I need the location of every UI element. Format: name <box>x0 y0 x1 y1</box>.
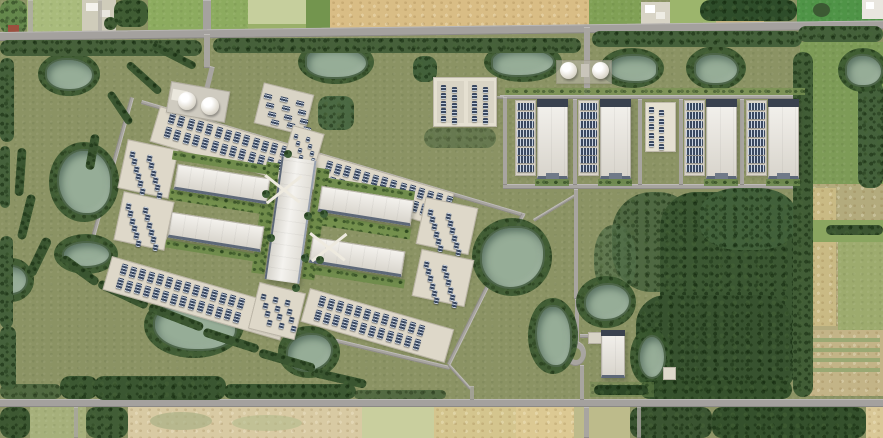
cooling-unit <box>517 130 534 137</box>
lawn-strip <box>598 179 632 186</box>
tree <box>316 256 324 264</box>
crop-row <box>812 358 880 362</box>
tree-clump <box>318 96 354 130</box>
farm-field <box>866 407 883 438</box>
tree <box>292 284 300 292</box>
equipment-unit <box>433 297 439 305</box>
tree-clump <box>114 0 148 27</box>
farm-road <box>28 0 33 34</box>
lawn-strip <box>505 88 805 95</box>
equipment-unit <box>135 239 141 247</box>
cooling-unit <box>748 130 765 137</box>
transformer-unit <box>649 141 654 147</box>
cooling-unit <box>517 165 534 172</box>
cooling-unit <box>517 121 534 128</box>
campus-road <box>503 97 507 185</box>
utility-unit <box>309 151 314 157</box>
forest <box>700 188 796 250</box>
cooling-unit <box>580 148 597 155</box>
tree <box>262 190 270 198</box>
cooling-unit <box>686 139 703 146</box>
crop-row <box>812 368 880 372</box>
transformer-unit <box>649 124 654 130</box>
transformer-unit <box>659 136 664 142</box>
transformer-unit <box>649 107 654 113</box>
tree-band-west <box>0 236 13 328</box>
tree-clump <box>424 128 496 148</box>
cooling-unit <box>517 156 534 163</box>
farm-building <box>656 12 665 19</box>
cooling-unit <box>517 139 534 146</box>
transformer-unit <box>659 110 664 116</box>
transformer-unit <box>649 133 654 139</box>
cooling-unit <box>686 121 703 128</box>
equipment-unit <box>152 243 158 251</box>
hedgerow <box>594 385 648 395</box>
data-hall <box>768 99 799 179</box>
utility-unit <box>297 148 302 154</box>
cooling-unit <box>748 103 765 110</box>
farm-building <box>86 3 98 11</box>
transformer-unit <box>472 101 477 107</box>
roof-section <box>706 99 737 107</box>
crop-row <box>812 338 880 342</box>
tree-band-west <box>0 326 16 390</box>
tree <box>304 212 312 220</box>
cooling-unit <box>748 156 765 163</box>
transformer-unit <box>452 95 457 101</box>
cooling-unit <box>686 165 703 172</box>
transformer-unit <box>452 118 457 124</box>
field-blotch <box>150 412 212 430</box>
transformer-unit <box>483 95 488 101</box>
field-blotch <box>232 415 302 431</box>
transformer-unit <box>659 119 664 125</box>
equipment-unit <box>137 180 143 188</box>
cooling-unit <box>748 165 765 172</box>
transformer-unit <box>472 93 477 99</box>
pond <box>638 335 666 379</box>
hedgerow <box>826 225 883 235</box>
transformer-unit <box>452 110 457 116</box>
pond <box>694 53 739 85</box>
crop-row <box>812 348 880 352</box>
cooling-unit <box>517 103 534 110</box>
campus-road <box>574 189 578 299</box>
tree-clump <box>86 407 128 438</box>
pond <box>45 58 94 91</box>
transformer-unit <box>472 85 477 91</box>
tree-band-south <box>224 384 356 399</box>
cooling-unit <box>748 121 765 128</box>
tree-band-south <box>354 390 446 399</box>
pond <box>845 54 883 87</box>
cooling-unit <box>748 112 765 119</box>
farm-field <box>810 188 836 326</box>
equipment-unit <box>437 245 443 253</box>
lawn-strip <box>704 179 738 186</box>
transformer-unit <box>649 116 654 122</box>
pond <box>57 149 112 215</box>
transformer-unit <box>441 85 446 91</box>
cooling-unit <box>580 165 597 172</box>
aerial-site-plan <box>0 0 883 438</box>
transformer-unit <box>472 116 477 122</box>
tree-band-south <box>94 376 226 400</box>
equipment-unit <box>154 184 160 192</box>
tree-clump <box>0 407 30 438</box>
farm-field <box>574 407 630 438</box>
farm-building <box>866 2 874 9</box>
cooling-unit <box>686 156 703 163</box>
utility-building <box>601 330 625 378</box>
pond <box>535 305 572 367</box>
farm-road <box>584 407 589 438</box>
tree-band-south <box>60 376 98 399</box>
tree <box>284 150 292 158</box>
farm-field <box>362 407 434 438</box>
tree <box>301 254 309 262</box>
tree-band-north <box>213 38 581 53</box>
cooling-unit <box>580 112 597 119</box>
tree <box>267 234 275 242</box>
cooling-unit <box>580 130 597 137</box>
pump-building <box>581 64 589 77</box>
roof-section <box>768 99 799 107</box>
farm-field <box>838 242 883 330</box>
farm-road <box>98 0 102 34</box>
highway-south <box>0 399 883 407</box>
campus-road <box>470 386 474 400</box>
cooling-unit <box>580 156 597 163</box>
roof-section <box>601 330 625 336</box>
tree-clump <box>630 407 712 438</box>
farm-field <box>248 0 306 24</box>
equipment-unit <box>133 232 139 240</box>
farm-field <box>516 407 574 438</box>
tree-band-south <box>640 380 792 399</box>
equipment-unit <box>451 301 457 309</box>
lawn-strip <box>766 179 800 186</box>
pond <box>607 54 658 83</box>
transformer-unit <box>483 87 488 93</box>
cooling-unit <box>580 121 597 128</box>
tree-clump <box>858 80 883 188</box>
tree-band-west <box>0 146 10 208</box>
campus-road <box>573 99 577 185</box>
cooling-unit <box>686 130 703 137</box>
water-tank <box>592 62 609 79</box>
transformer-unit <box>659 144 664 150</box>
water-tank <box>201 97 219 115</box>
data-hall <box>537 99 568 179</box>
transformer-unit <box>452 87 457 93</box>
equipment-unit <box>150 236 156 244</box>
tree <box>320 210 328 218</box>
transformer-unit <box>441 93 446 99</box>
roof-section <box>537 99 568 107</box>
transformer-unit <box>472 108 477 114</box>
transformer-unit <box>441 116 446 122</box>
cooling-unit <box>580 103 597 110</box>
transformer-unit <box>441 108 446 114</box>
lawn-strip <box>535 179 569 186</box>
campus-road <box>740 99 744 185</box>
cooling-unit <box>580 139 597 146</box>
farm-pond <box>813 3 830 17</box>
data-hall <box>706 99 737 179</box>
tree-row <box>700 0 797 21</box>
tree-band-north <box>592 31 802 47</box>
cooling-unit <box>748 148 765 155</box>
water-tank <box>560 62 577 79</box>
cooling-unit <box>686 148 703 155</box>
tree-band-west <box>0 58 14 142</box>
campus-road <box>580 365 584 400</box>
cooling-unit <box>517 148 534 155</box>
utility-pad <box>663 367 676 380</box>
farm-field <box>27 0 83 34</box>
transformer-unit <box>452 103 457 109</box>
campus-road <box>638 99 642 185</box>
farm-road <box>637 407 641 438</box>
cooling-unit <box>686 112 703 119</box>
data-hall <box>600 99 631 179</box>
farm-field <box>434 407 516 438</box>
transformer-unit <box>483 118 488 124</box>
cooling-unit <box>517 112 534 119</box>
roof-section <box>600 99 631 107</box>
utility-pad <box>588 332 602 344</box>
water-tank <box>178 92 196 110</box>
farm-road <box>74 407 78 438</box>
tree-clump <box>712 407 866 438</box>
tree-band-north <box>798 26 883 42</box>
cooling-unit <box>686 103 703 110</box>
farm-building <box>645 5 655 13</box>
campus-entry-road <box>204 34 210 68</box>
cooling-unit <box>748 139 765 146</box>
campus-road <box>679 99 683 185</box>
transformer-unit <box>659 127 664 133</box>
transformer-unit <box>441 101 446 107</box>
transformer-unit <box>483 110 488 116</box>
transformer-unit <box>483 103 488 109</box>
